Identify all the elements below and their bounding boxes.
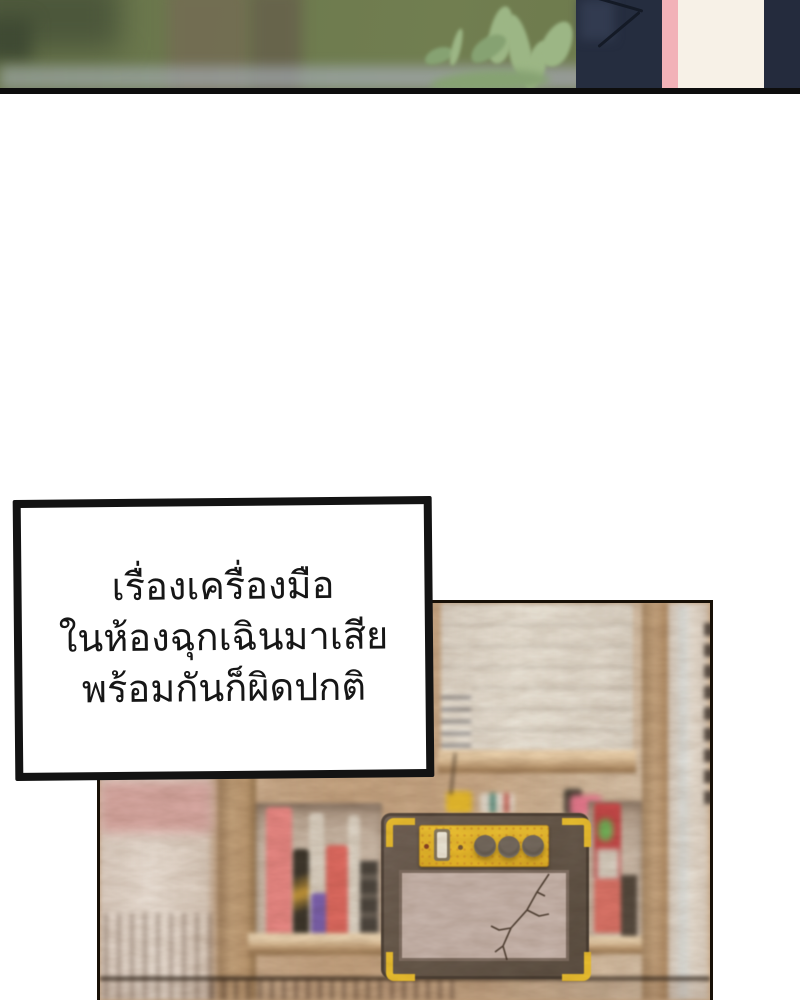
narration-line-2: ในห้องฉุกเฉินมาเสีย <box>58 611 388 665</box>
amp-corner-bracket <box>386 818 415 847</box>
bookshelf-niche-right <box>588 801 642 938</box>
narration-line-3: พร้อมกันก็ผิดปกติ <box>82 663 367 717</box>
jacket-fold-highlight <box>580 0 614 40</box>
shelf-ledge <box>248 933 394 955</box>
book-spine-pink <box>266 807 292 935</box>
book-spine-red <box>326 845 348 935</box>
shirt <box>678 0 764 94</box>
wood-column <box>642 603 668 1000</box>
collar-strip <box>662 0 678 94</box>
speaker-crack <box>399 870 569 961</box>
small-canisters <box>480 793 514 813</box>
red-box <box>594 803 621 880</box>
amp-indicator-dot <box>458 845 463 850</box>
shelf-bar <box>438 750 636 773</box>
dark-box-stack <box>360 861 378 935</box>
amp-power-switch <box>437 832 447 858</box>
forest-scene-panel <box>0 0 800 94</box>
shelf-ledge <box>584 936 646 954</box>
slat-blinds <box>704 623 713 809</box>
narration-box: เรื่องเครื่องมือ ในห้องฉุกเฉินมาเสีย พร้… <box>13 496 435 781</box>
bookshelf-niche <box>256 803 382 935</box>
counter-fringe <box>210 980 460 1000</box>
amp-knob <box>498 836 520 858</box>
dark-divider <box>621 875 637 936</box>
pink-cloth <box>100 781 212 833</box>
book-spine-white <box>348 815 360 935</box>
character-jacket <box>764 0 800 94</box>
comic-page: เรื่องเครื่องมือ ในห้องฉุกเฉินมาเสีย พร้… <box>0 0 800 1000</box>
guitar-amp <box>381 813 589 979</box>
foliage-shadow <box>0 18 32 60</box>
narration-line-1: เรื่องเครื่องมือ <box>111 561 334 614</box>
amp-corner-bracket <box>562 818 591 847</box>
amp-indicator-dot <box>424 844 429 849</box>
amp-knob <box>474 835 496 857</box>
white-label <box>597 849 619 879</box>
paper-stacks-small <box>441 687 471 751</box>
amp-control-panel <box>419 825 549 867</box>
amp-knob <box>522 835 544 857</box>
gold-bottle <box>293 849 309 935</box>
salmon-book <box>594 880 621 933</box>
curtain-sheen <box>678 603 688 1000</box>
amp-speaker-front <box>399 870 569 961</box>
green-label <box>598 819 613 841</box>
